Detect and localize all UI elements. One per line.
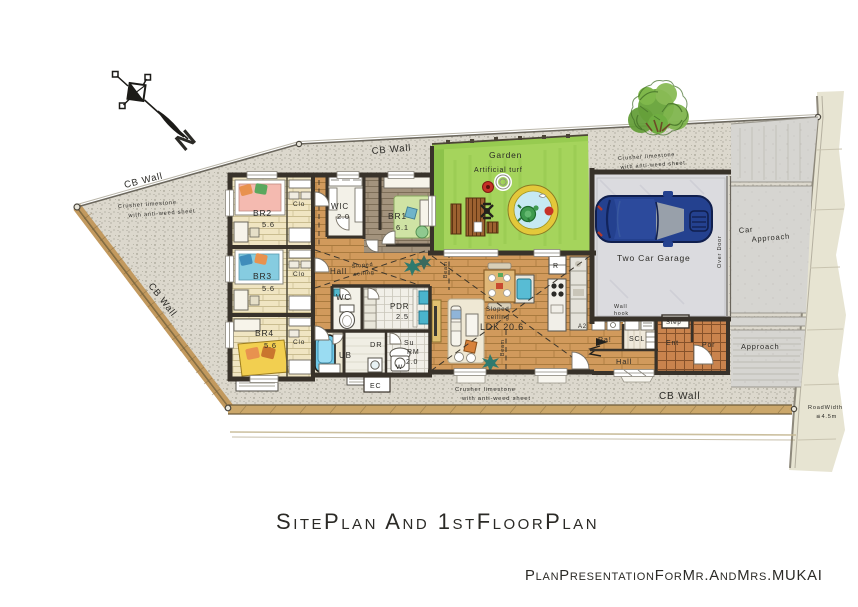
svg-text:Over Door: Over Door xyxy=(717,235,723,268)
svg-text:Sloped: Sloped xyxy=(486,307,509,313)
svg-text:BR3: BR3 xyxy=(253,271,272,281)
svg-text:ceiling: ceiling xyxy=(487,315,510,321)
svg-text:Beam: Beam xyxy=(500,339,506,356)
svg-text:Wall: Wall xyxy=(614,304,627,310)
svg-text:6.1: 6.1 xyxy=(396,223,409,232)
svg-text:A2: A2 xyxy=(578,324,587,330)
svg-text:2.5: 2.5 xyxy=(396,312,409,321)
svg-text:Clo: Clo xyxy=(293,339,305,346)
svg-text:SCL: SCL xyxy=(629,336,645,343)
svg-text:LDK 20.6: LDK 20.6 xyxy=(480,322,524,332)
svg-text:SITEPLAN AND 1STFLOORPLAN: SITEPLAN AND 1STFLOORPLAN xyxy=(276,509,599,534)
svg-text:UB: UB xyxy=(339,351,352,360)
svg-text:Artificial turf: Artificial turf xyxy=(474,167,523,174)
svg-text:BR2: BR2 xyxy=(253,208,272,218)
svg-text:DR: DR xyxy=(370,340,382,349)
svg-text:with anti-weed sheet: with anti-weed sheet xyxy=(461,396,531,402)
svg-text:RM: RM xyxy=(407,349,420,356)
svg-text:BR1: BR1 xyxy=(388,211,407,221)
svg-text:CB Wall: CB Wall xyxy=(659,391,700,402)
svg-text:W: W xyxy=(396,364,403,371)
svg-text:5.6: 5.6 xyxy=(264,341,277,350)
svg-text:EC: EC xyxy=(370,383,381,390)
svg-text:R: R xyxy=(553,263,559,270)
svg-text:WC: WC xyxy=(336,293,351,302)
svg-text:PLANPRESENTATIONFORMR.ANDMRS.M: PLANPRESENTATIONFORMR.ANDMRS.MUKAI xyxy=(525,568,823,584)
svg-text:Approach: Approach xyxy=(741,342,780,351)
svg-text:≌4.5m: ≌4.5m xyxy=(816,414,837,420)
svg-text:Ent: Ent xyxy=(666,340,679,347)
svg-text:Two Car Garage: Two Car Garage xyxy=(617,253,691,263)
svg-text:PDR: PDR xyxy=(390,302,409,311)
svg-text:Beam: Beam xyxy=(443,261,449,278)
svg-text:5.6: 5.6 xyxy=(262,284,275,293)
svg-text:Step: Step xyxy=(666,320,682,326)
svg-text:WIC: WIC xyxy=(331,202,349,211)
svg-text:Hall: Hall xyxy=(616,357,632,366)
svg-text:Por: Por xyxy=(702,342,715,349)
svg-text:Su: Su xyxy=(404,340,414,347)
svg-text:hook: hook xyxy=(614,311,629,317)
svg-text:Garden: Garden xyxy=(489,150,522,160)
svg-text:BR4: BR4 xyxy=(255,328,274,338)
svg-text:5.6: 5.6 xyxy=(262,220,275,229)
svg-text:RoadWidth: RoadWidth xyxy=(808,405,843,411)
svg-text:Clo: Clo xyxy=(293,271,305,278)
svg-text:2.0: 2.0 xyxy=(406,359,418,366)
svg-text:Car: Car xyxy=(738,225,753,235)
svg-text:Clo: Clo xyxy=(293,201,305,208)
svg-text:Pa!: Pa! xyxy=(598,335,612,344)
svg-text:Hall: Hall xyxy=(330,267,347,276)
svg-text:Crusher limestone: Crusher limestone xyxy=(455,387,516,393)
svg-text:2.0: 2.0 xyxy=(337,212,350,221)
